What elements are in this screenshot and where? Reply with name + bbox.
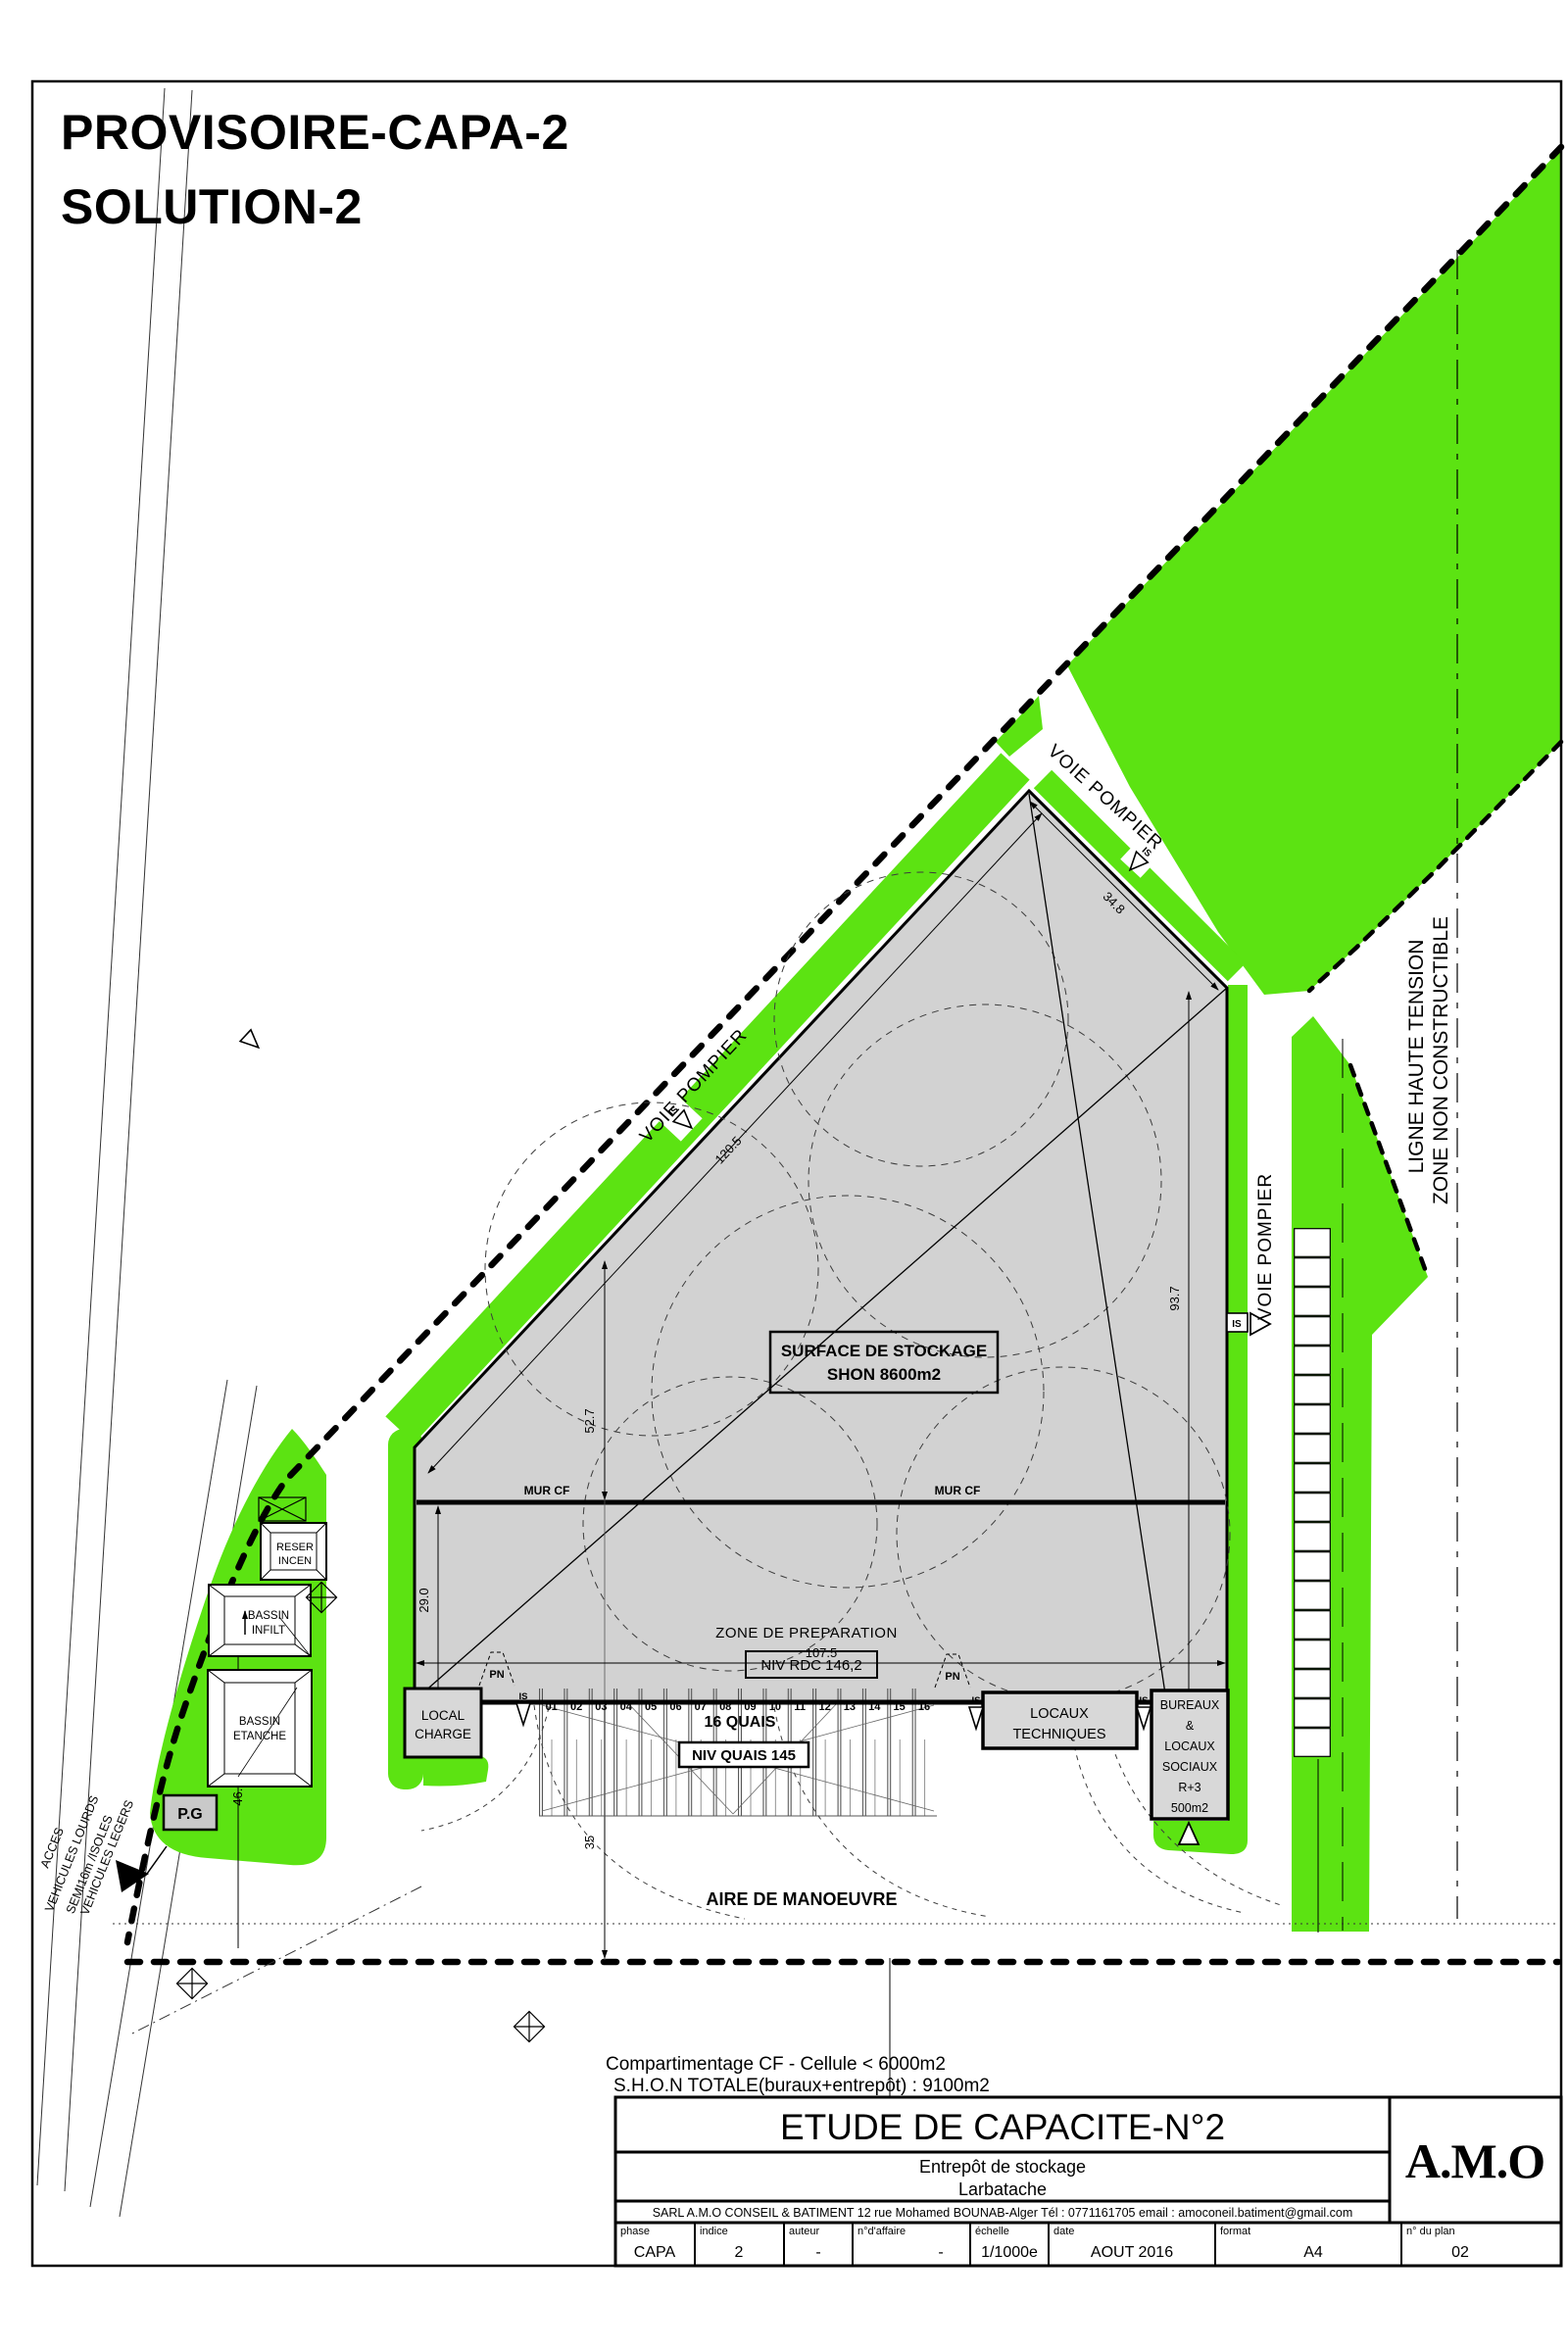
bassin-etanche-line2: ETANCHE — [233, 1731, 286, 1742]
svg-text:AOUT 2016: AOUT 2016 — [1091, 2244, 1173, 2261]
svg-text:16: 16 — [918, 1701, 930, 1713]
reserve-line1: RESER — [276, 1542, 314, 1553]
titleblock-company: SARL A.M.O CONSEIL & BATIMENT 12 rue Moh… — [653, 2206, 1353, 2220]
pg-label: P.G — [177, 1806, 203, 1823]
green-strip-east — [1228, 985, 1248, 1821]
site-plan-canvas: MUR CF MUR CF 120.5 34.8 93.7 52.7 29.0 … — [0, 0, 1568, 2351]
svg-text:06: 06 — [669, 1701, 681, 1713]
local-charge-line2: CHARGE — [415, 1727, 471, 1741]
svg-text:IS: IS — [519, 1691, 528, 1702]
svg-text:01: 01 — [546, 1701, 558, 1713]
svg-text:phase: phase — [620, 2226, 650, 2237]
aire-manoeuvre-label: AIRE DE MANOEUVRE — [706, 1889, 897, 1909]
svg-text:échelle: échelle — [975, 2226, 1009, 2237]
quais-title: 16 QUAIS — [705, 1714, 776, 1731]
svg-text:14: 14 — [868, 1701, 881, 1713]
sheet-title-line2: SOLUTION-2 — [61, 179, 363, 234]
titleblock-project: Entrepôt de stockage — [919, 2157, 1086, 2177]
access-labels: ACCES VEHICULES LOURDS SEMI16m /ISOLES V… — [38, 1793, 136, 1917]
svg-text:2: 2 — [735, 2244, 744, 2261]
svg-text:04: 04 — [620, 1701, 633, 1713]
svg-text:12: 12 — [818, 1701, 830, 1713]
storage-line2: SHON 8600m2 — [827, 1365, 941, 1384]
dim-apron: 35 — [582, 1836, 597, 1849]
note-line2: S.H.O.N TOTALE(buraux+entrepôt) : 9100m2 — [613, 2076, 990, 2096]
svg-text:11: 11 — [794, 1701, 806, 1713]
dim-mid: 52.7 — [582, 1408, 597, 1433]
note-line1: Compartimentage CF - Cellule < 6000m2 — [606, 2054, 946, 2075]
svg-text:&: & — [1186, 1719, 1195, 1733]
mur-cf-label: MUR CF — [524, 1484, 570, 1497]
locaux-techniques-line2: TECHNIQUES — [1012, 1727, 1105, 1742]
drawing-sheet: MUR CF MUR CF 120.5 34.8 93.7 52.7 29.0 … — [0, 0, 1568, 2351]
svg-text:auteur: auteur — [789, 2226, 820, 2237]
bassin-infilt-line2: INFILT — [252, 1625, 285, 1637]
svg-text:indice: indice — [700, 2226, 728, 2237]
svg-text:IS: IS — [1140, 1695, 1149, 1706]
reserve-line2: INCEN — [278, 1555, 312, 1567]
mur-cf-label: MUR CF — [935, 1484, 981, 1497]
title-block: ETUDE DE CAPACITE-N°2 Entrepôt de stocka… — [615, 2097, 1561, 2266]
svg-text:SOCIAUX: SOCIAUX — [1162, 1760, 1218, 1774]
svg-text:13: 13 — [844, 1701, 856, 1713]
bassin-etanche-line1: BASSIN — [239, 1716, 280, 1728]
svg-text:IS: IS — [972, 1695, 981, 1706]
svg-text:1/1000e: 1/1000e — [981, 2244, 1038, 2261]
bassin-etanche: BASSIN ETANCHE — [208, 1670, 312, 1787]
svg-text:R+3: R+3 — [1178, 1781, 1200, 1794]
svg-text:03: 03 — [595, 1701, 607, 1713]
is-marker-road-entry — [240, 1030, 264, 1053]
niv-quais-label: NIV QUAIS 145 — [692, 1747, 796, 1764]
amo-logo: A.M.O — [1405, 2133, 1544, 2188]
sheet-title-line1: PROVISOIRE-CAPA-2 — [61, 105, 569, 160]
svg-text:-: - — [938, 2244, 943, 2261]
zone-non-constructible-label: ZONE NON CONSTRUCTIBLE — [1430, 916, 1452, 1204]
svg-text:02: 02 — [570, 1701, 582, 1713]
svg-text:n° du plan: n° du plan — [1406, 2226, 1455, 2237]
green-wrap-bureaux — [1153, 1821, 1248, 1854]
reserve-incendie: RESER INCEN — [261, 1523, 326, 1580]
bassin-infilt: BASSIN INFILT — [209, 1585, 311, 1656]
titleblock-location: Larbatache — [958, 2180, 1047, 2199]
svg-text:05: 05 — [645, 1701, 657, 1713]
svg-text:07: 07 — [695, 1701, 707, 1713]
svg-text:08: 08 — [719, 1701, 731, 1713]
east-parking-ladder — [1294, 1228, 1331, 1757]
svg-text:format: format — [1220, 2226, 1250, 2237]
svg-text:02: 02 — [1451, 2244, 1469, 2261]
svg-text:09: 09 — [744, 1701, 756, 1713]
niv-rdc-label: NIV RDC 146,2 — [760, 1657, 861, 1674]
svg-text:n°d'affaire: n°d'affaire — [857, 2226, 906, 2237]
dim-right: 93.7 — [1167, 1286, 1182, 1310]
bassin-infilt-line1: BASSIN — [248, 1610, 289, 1622]
storage-line1: SURFACE DE STOCKAGE — [781, 1342, 987, 1360]
pg-box: P.G — [164, 1795, 217, 1830]
green-hook-patch — [423, 1756, 488, 1787]
local-charge-box — [405, 1689, 481, 1757]
svg-text:PN: PN — [489, 1669, 504, 1681]
svg-text:PN: PN — [945, 1671, 959, 1683]
locaux-techniques-line1: LOCAUX — [1030, 1706, 1089, 1722]
svg-text:BUREAUX: BUREAUX — [1160, 1698, 1220, 1712]
svg-text:date: date — [1053, 2226, 1074, 2237]
svg-text:LOCAUX: LOCAUX — [1164, 1739, 1215, 1753]
titleblock-title: ETUDE DE CAPACITE-N°2 — [780, 2107, 1225, 2147]
zone-preparation-label: ZONE DE PREPARATION — [715, 1625, 898, 1641]
svg-text:CAPA: CAPA — [634, 2244, 676, 2261]
svg-text:IS: IS — [1232, 1319, 1242, 1330]
voie-pompier-label-east: VOIE POMPIER — [1255, 1173, 1276, 1320]
ligne-haute-tension-label: LIGNE HAUTE TENSION — [1405, 940, 1428, 1174]
svg-text:A4: A4 — [1303, 2244, 1323, 2261]
dim-left: 29.0 — [416, 1588, 431, 1612]
svg-text:500m2: 500m2 — [1171, 1801, 1208, 1815]
svg-text:10: 10 — [769, 1701, 781, 1713]
svg-text:-: - — [815, 2244, 820, 2261]
svg-text:15: 15 — [893, 1701, 905, 1713]
local-charge-line1: LOCAL — [421, 1708, 465, 1723]
